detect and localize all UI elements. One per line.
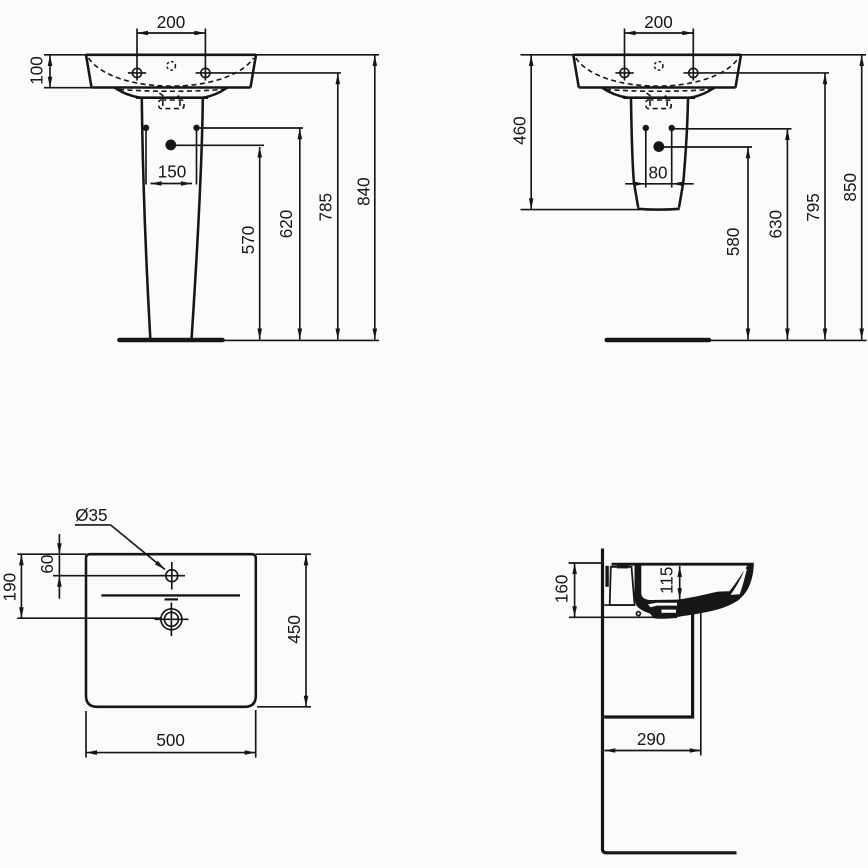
svg-text:850: 850 — [841, 173, 860, 202]
svg-text:500: 500 — [156, 731, 185, 750]
svg-text:100: 100 — [27, 56, 46, 85]
svg-text:Ø35: Ø35 — [75, 506, 107, 525]
svg-text:460: 460 — [511, 116, 530, 145]
svg-text:785: 785 — [317, 193, 336, 222]
svg-text:580: 580 — [724, 228, 743, 257]
svg-text:60: 60 — [38, 555, 57, 574]
svg-text:150: 150 — [158, 162, 187, 181]
svg-text:570: 570 — [239, 226, 258, 255]
svg-text:200: 200 — [157, 13, 186, 32]
svg-text:290: 290 — [637, 730, 666, 749]
svg-text:840: 840 — [355, 177, 374, 206]
svg-text:795: 795 — [804, 193, 823, 222]
svg-text:115: 115 — [658, 567, 677, 594]
svg-text:160: 160 — [553, 575, 572, 604]
svg-text:190: 190 — [0, 573, 19, 602]
svg-text:630: 630 — [766, 210, 785, 239]
svg-text:450: 450 — [285, 615, 304, 644]
svg-text:620: 620 — [277, 210, 296, 239]
svg-text:200: 200 — [644, 13, 673, 32]
svg-text:80: 80 — [648, 164, 667, 183]
